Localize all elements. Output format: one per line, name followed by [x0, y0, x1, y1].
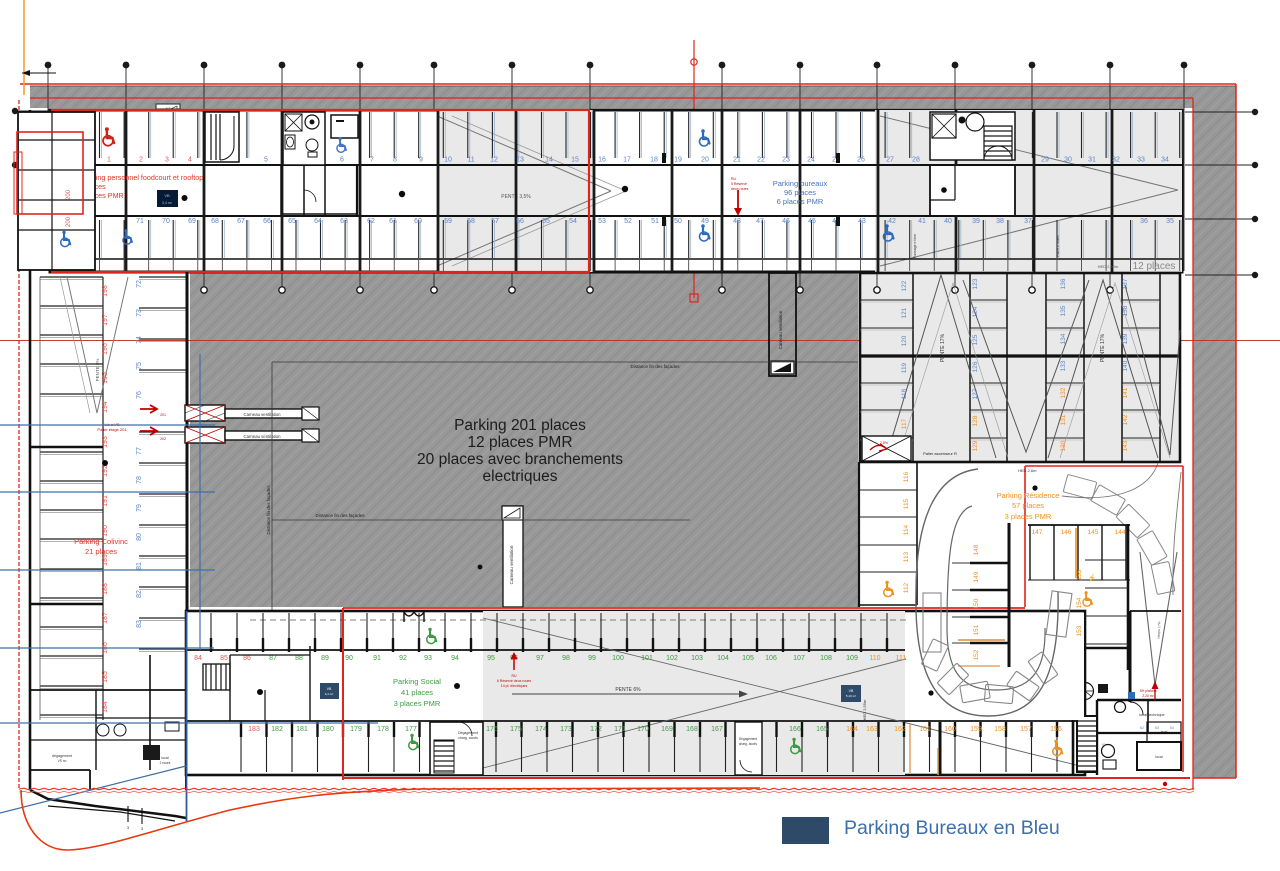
svg-text:Place 2 roues: Place 2 roues	[1056, 235, 1060, 257]
svg-text:165: 165	[816, 726, 828, 733]
svg-text:62: 62	[1140, 726, 1144, 730]
svg-text:70: 70	[162, 218, 170, 225]
svg-text:135: 135	[1060, 305, 1067, 316]
svg-text:58: 58	[467, 218, 475, 225]
svg-text:63: 63	[1155, 726, 1159, 730]
svg-text:200: 200	[66, 189, 72, 200]
svg-text:4: 4	[188, 157, 192, 164]
svg-text:38: 38	[996, 218, 1004, 225]
svg-text:167: 167	[711, 726, 723, 733]
svg-text:3 places PMR: 3 places PMR	[1005, 512, 1052, 521]
svg-text:Carneau ventilation: Carneau ventilation	[243, 412, 281, 417]
svg-text:187: 187	[102, 612, 109, 624]
svg-text:88: 88	[295, 655, 303, 662]
svg-text:Carneau ventilation: Carneau ventilation	[509, 545, 514, 584]
svg-text:142: 142	[1122, 414, 1129, 425]
svg-text:164: 164	[846, 726, 858, 733]
svg-text:HED 2,60m: HED 2,60m	[1098, 264, 1119, 269]
svg-text:51: 51	[651, 218, 659, 225]
svg-text:148: 148	[973, 544, 980, 555]
svg-text:VB: VB	[849, 689, 854, 693]
svg-text:62: 62	[367, 218, 375, 225]
svg-text:147: 147	[1032, 529, 1043, 536]
svg-text:charg. accès: charg. accès	[458, 736, 478, 740]
svg-text:19: 19	[674, 157, 682, 164]
svg-text:PENTE 6%: PENTE 6%	[615, 687, 641, 693]
svg-text:49: 49	[701, 218, 709, 225]
svg-text:171: 171	[614, 726, 626, 733]
svg-text:electriques: electriques	[483, 468, 558, 485]
svg-text:41 places: 41 places	[401, 688, 433, 697]
svg-text:86: 86	[243, 655, 251, 662]
svg-text:52: 52	[624, 218, 632, 225]
svg-text:107: 107	[793, 655, 805, 662]
svg-text:40: 40	[944, 218, 952, 225]
svg-text:67: 67	[237, 218, 245, 225]
svg-text:134: 134	[1060, 333, 1067, 344]
svg-text:39: 39	[972, 218, 980, 225]
svg-text:113: 113	[903, 551, 910, 562]
svg-text:169: 169	[661, 726, 673, 733]
svg-text:75: 75	[136, 362, 143, 370]
svg-text:5 Réservé: 5 Réservé	[731, 182, 747, 186]
svg-text:PENTE 17%: PENTE 17%	[940, 333, 946, 362]
svg-text:61: 61	[389, 218, 397, 225]
svg-text:9: 9	[419, 157, 423, 164]
svg-text:Passage e libre: Passage e libre	[913, 234, 917, 258]
svg-text:89: 89	[321, 655, 329, 662]
svg-text:173: 173	[560, 726, 572, 733]
svg-text:1: 1	[107, 157, 111, 164]
svg-text:78: 78	[136, 476, 143, 484]
svg-text:156: 156	[1050, 726, 1062, 733]
svg-text:155: 155	[1076, 569, 1083, 580]
svg-text:77: 77	[136, 447, 143, 455]
svg-text:8: 8	[393, 157, 397, 164]
svg-text:dégagement: dégagement	[52, 754, 72, 758]
svg-text:145: 145	[1088, 529, 1099, 536]
svg-text:29: 29	[1041, 157, 1049, 164]
svg-text:3: 3	[165, 157, 169, 164]
svg-text:2 roues: 2 roues	[160, 761, 171, 765]
svg-text:30: 30	[1064, 157, 1072, 164]
svg-text:5,10 m²: 5,10 m²	[846, 694, 856, 698]
svg-text:191: 191	[102, 495, 109, 507]
svg-text:12: 12	[490, 157, 498, 164]
svg-text:130: 130	[1060, 440, 1067, 451]
svg-text:local: local	[1155, 755, 1162, 759]
svg-text:45: 45	[808, 218, 816, 225]
svg-text:117: 117	[901, 418, 908, 429]
svg-text:168: 168	[686, 726, 698, 733]
svg-text:133: 133	[1060, 360, 1067, 371]
svg-text:11: 11	[467, 157, 474, 164]
svg-text:Parking Bureaux en Bleu: Parking Bureaux en Bleu	[844, 817, 1060, 839]
svg-text:41: 41	[918, 218, 926, 225]
svg-text:174: 174	[535, 726, 547, 733]
svg-text:7: 7	[370, 157, 374, 164]
svg-text:161: 161	[919, 726, 931, 733]
svg-text:Dégagement: Dégagement	[739, 737, 757, 741]
svg-text:81: 81	[136, 562, 143, 570]
svg-text:110: 110	[869, 655, 880, 662]
svg-text:Parking Colivinc: Parking Colivinc	[74, 537, 128, 546]
svg-text:200: 200	[66, 216, 72, 227]
svg-text:121: 121	[901, 307, 908, 318]
svg-text:3,4 m²: 3,4 m²	[162, 201, 173, 205]
svg-text:21: 21	[733, 157, 741, 164]
svg-text:137: 137	[1122, 278, 1129, 289]
svg-text:179: 179	[350, 726, 362, 733]
svg-text:73: 73	[136, 309, 143, 317]
svg-text:Parking 201 places: Parking 201 places	[454, 417, 586, 434]
svg-text:68: 68	[211, 218, 219, 225]
svg-text:RU: RU	[511, 674, 517, 678]
svg-text:57: 57	[491, 218, 499, 225]
svg-text:193: 193	[102, 436, 109, 448]
svg-text:178: 178	[377, 726, 389, 733]
svg-text:RU: RU	[731, 177, 737, 181]
svg-text:Distance fin des façades: Distance fin des façades	[266, 485, 271, 535]
svg-text:94: 94	[451, 655, 459, 662]
svg-text:166: 166	[789, 726, 801, 733]
svg-text:69: 69	[188, 218, 196, 225]
svg-text:159: 159	[970, 726, 982, 733]
svg-text:158: 158	[994, 726, 1006, 733]
svg-text:194: 194	[102, 401, 109, 413]
svg-text:127: 127	[972, 388, 979, 399]
svg-text:183: 183	[248, 726, 260, 733]
svg-text:71: 71	[136, 218, 144, 225]
svg-text:Palier ascenseur R: Palier ascenseur R	[923, 451, 957, 456]
svg-text:84: 84	[194, 655, 202, 662]
svg-text:103: 103	[691, 655, 703, 662]
svg-text:106: 106	[765, 655, 777, 662]
svg-text:196: 196	[102, 343, 109, 355]
svg-text:99: 99	[588, 655, 596, 662]
svg-text:152: 152	[973, 649, 980, 660]
svg-text:3 places PMR: 3 places PMR	[394, 699, 441, 708]
svg-text:14 pl. électriques: 14 pl. électriques	[501, 684, 528, 688]
svg-text:Parking Résidence: Parking Résidence	[997, 491, 1060, 500]
svg-text:150: 150	[973, 598, 980, 609]
svg-text:109: 109	[846, 655, 858, 662]
svg-text:22: 22	[757, 157, 765, 164]
svg-text:92: 92	[399, 655, 407, 662]
svg-text:20: 20	[701, 157, 709, 164]
svg-text:201: 201	[160, 413, 166, 417]
svg-text:170: 170	[637, 726, 649, 733]
svg-text:172: 172	[590, 726, 602, 733]
svg-text:95: 95	[487, 655, 495, 662]
svg-text:60: 60	[414, 218, 422, 225]
svg-text:33: 33	[1137, 157, 1145, 164]
svg-text:59: 59	[444, 218, 452, 225]
svg-text:48: 48	[733, 218, 741, 225]
svg-text:15: 15	[571, 157, 579, 164]
svg-text:31: 31	[1088, 157, 1096, 164]
svg-text:43: 43	[858, 218, 866, 225]
svg-text:112: 112	[903, 582, 910, 593]
svg-text:176: 176	[486, 726, 498, 733]
svg-text:6 places PMR: 6 places PMR	[777, 197, 824, 206]
svg-text:192: 192	[102, 465, 109, 477]
svg-text:24: 24	[807, 157, 815, 164]
svg-text:105: 105	[742, 655, 754, 662]
svg-text:97: 97	[536, 655, 544, 662]
svg-text:53: 53	[598, 218, 606, 225]
svg-text:17: 17	[623, 157, 631, 164]
svg-text:122: 122	[901, 280, 908, 291]
svg-text:56: 56	[516, 218, 524, 225]
svg-text:65: 65	[288, 218, 296, 225]
svg-text:34: 34	[1161, 157, 1169, 164]
svg-text:157: 157	[1020, 726, 1032, 733]
svg-text:35: 35	[1166, 218, 1174, 225]
svg-text:111: 111	[896, 655, 907, 662]
svg-text:91: 91	[373, 655, 381, 662]
svg-text:141: 141	[1122, 387, 1129, 398]
svg-text:Dégagement: Dégagement	[458, 731, 478, 735]
svg-text:146: 146	[1061, 529, 1072, 536]
svg-text:108: 108	[820, 655, 832, 662]
svg-text:63: 63	[340, 218, 348, 225]
svg-text:55: 55	[542, 218, 550, 225]
svg-text:36: 36	[1140, 218, 1148, 225]
svg-text:72: 72	[136, 280, 143, 288]
svg-text:98: 98	[562, 655, 570, 662]
svg-text:144: 144	[1115, 529, 1126, 536]
svg-text:116: 116	[903, 471, 910, 482]
svg-text:154: 154	[1076, 597, 1083, 608]
svg-text:54: 54	[569, 218, 577, 225]
svg-text:2,20 m²: 2,20 m²	[1142, 694, 1154, 698]
svg-text:local technique: local technique	[1139, 713, 1164, 717]
svg-text:132: 132	[1060, 387, 1067, 398]
svg-text:143: 143	[1122, 440, 1129, 451]
svg-text:74: 74	[136, 336, 143, 344]
svg-text:185: 185	[102, 671, 109, 683]
svg-text:202: 202	[160, 437, 166, 441]
svg-text:18: 18	[650, 157, 658, 164]
svg-text:3,4 m²: 3,4 m²	[325, 692, 334, 696]
svg-text:16: 16	[598, 157, 606, 164]
svg-text:local: local	[161, 756, 169, 760]
svg-text:5: 5	[264, 157, 268, 164]
svg-text:2: 2	[139, 157, 143, 164]
svg-text:163: 163	[866, 726, 878, 733]
svg-text:79: 79	[136, 504, 143, 512]
svg-text:136: 136	[1060, 278, 1067, 289]
svg-text:37: 37	[1024, 218, 1032, 225]
svg-text:175: 175	[510, 726, 522, 733]
svg-text:10: 10	[444, 157, 452, 164]
svg-text:190: 190	[102, 525, 109, 537]
svg-text:197: 197	[102, 314, 109, 326]
svg-text:139: 139	[1122, 333, 1129, 344]
svg-text:Carneau ventilation: Carneau ventilation	[778, 310, 783, 349]
svg-text:177: 177	[405, 726, 417, 733]
svg-text:14: 14	[545, 157, 553, 164]
svg-text:182: 182	[271, 726, 283, 733]
svg-text:198: 198	[102, 285, 109, 297]
svg-text:180: 180	[322, 726, 334, 733]
svg-text:100: 100	[612, 655, 624, 662]
svg-text:VB: VB	[327, 687, 332, 691]
svg-text:Palier étage 201: Palier étage 201	[97, 427, 127, 432]
svg-text:28: 28	[912, 157, 920, 164]
svg-text:115: 115	[903, 498, 910, 509]
svg-text:126: 126	[972, 361, 979, 372]
svg-text:82: 82	[136, 590, 143, 598]
svg-text:27: 27	[886, 157, 894, 164]
svg-text:13: 13	[516, 157, 524, 164]
svg-text:57 places: 57 places	[1012, 501, 1044, 510]
svg-text:PENTE 17%: PENTE 17%	[1100, 333, 1106, 362]
svg-text:162: 162	[894, 726, 906, 733]
svg-text:64: 64	[1170, 726, 1174, 730]
svg-text:140: 140	[1122, 360, 1129, 371]
svg-text:VB: VB	[164, 193, 170, 198]
svg-text:26: 26	[857, 157, 865, 164]
svg-text:138: 138	[1122, 305, 1129, 316]
svg-text:160: 160	[944, 726, 956, 733]
svg-text:2,5%: 2,5%	[880, 441, 888, 445]
svg-text:23: 23	[782, 157, 790, 164]
svg-text:129: 129	[972, 440, 979, 451]
svg-text:96 places: 96 places	[784, 188, 816, 197]
svg-text:80: 80	[136, 533, 143, 541]
svg-text:32: 32	[1112, 157, 1120, 164]
svg-text:101: 101	[641, 655, 653, 662]
svg-text:83: 83	[136, 620, 143, 628]
svg-text:47: 47	[756, 218, 764, 225]
svg-text:118: 118	[901, 388, 908, 399]
svg-text:85: 85	[220, 655, 228, 662]
svg-text:Carneau ventilation: Carneau ventilation	[243, 434, 281, 439]
svg-text:90: 90	[345, 655, 353, 662]
svg-text:66: 66	[263, 218, 271, 225]
svg-text:93: 93	[424, 655, 432, 662]
svg-text:Distance fin des façades: Distance fin des façades	[315, 513, 365, 518]
svg-text:6 Réservé deux roues: 6 Réservé deux roues	[497, 679, 531, 683]
svg-text:125: 125	[972, 334, 979, 345]
svg-text:128: 128	[972, 415, 979, 426]
svg-text:HED 2,55m: HED 2,55m	[862, 699, 867, 720]
svg-text:149: 149	[973, 571, 980, 582]
svg-text:181: 181	[296, 726, 308, 733]
svg-text:HED 2,6m: HED 2,6m	[1018, 468, 1037, 473]
svg-text:114: 114	[903, 524, 910, 535]
svg-text:119: 119	[901, 362, 908, 373]
svg-text:⚡: ⚡	[1088, 573, 1097, 582]
svg-text:184: 184	[102, 701, 109, 713]
svg-text:21 places: 21 places	[85, 547, 117, 556]
svg-text:188: 188	[102, 583, 109, 595]
svg-text:Parking Social: Parking Social	[393, 677, 441, 686]
svg-text:102: 102	[666, 655, 678, 662]
svg-text:12 places: 12 places	[1133, 261, 1176, 272]
svg-text:6: 6	[340, 157, 344, 164]
svg-text:Distance fin des façades: Distance fin des façades	[630, 364, 680, 369]
svg-text:104: 104	[717, 655, 729, 662]
svg-text:42: 42	[888, 218, 896, 225]
svg-text:12 places PMR: 12 places PMR	[467, 434, 572, 451]
svg-text:124: 124	[972, 306, 979, 317]
svg-text:46: 46	[782, 218, 790, 225]
svg-text:deux roues: deux roues	[731, 187, 749, 191]
svg-text:151: 151	[973, 624, 980, 635]
svg-text:20 places avec branchements: 20 places avec branchements	[417, 451, 623, 468]
svg-text:PENTE 8%: PENTE 8%	[95, 359, 100, 382]
svg-text:charg. accès: charg. accès	[739, 742, 757, 746]
svg-text:50: 50	[674, 218, 682, 225]
svg-text:131: 131	[1060, 414, 1067, 425]
svg-text:61: 61	[1102, 743, 1106, 747]
svg-text:64: 64	[314, 218, 322, 225]
svg-text:Parking bureaux: Parking bureaux	[773, 179, 828, 188]
svg-text:VS m²: VS m²	[58, 759, 67, 763]
svg-text:76: 76	[136, 391, 143, 399]
svg-text:120: 120	[901, 335, 908, 346]
svg-text:SH plafond: SH plafond	[1140, 689, 1157, 693]
svg-text:87: 87	[269, 655, 277, 662]
svg-text:Parking personnel foodcourt e: Parking personnel foodcourt et rooftop	[81, 173, 203, 182]
svg-text:123: 123	[972, 278, 979, 289]
svg-text:153: 153	[1076, 625, 1083, 636]
